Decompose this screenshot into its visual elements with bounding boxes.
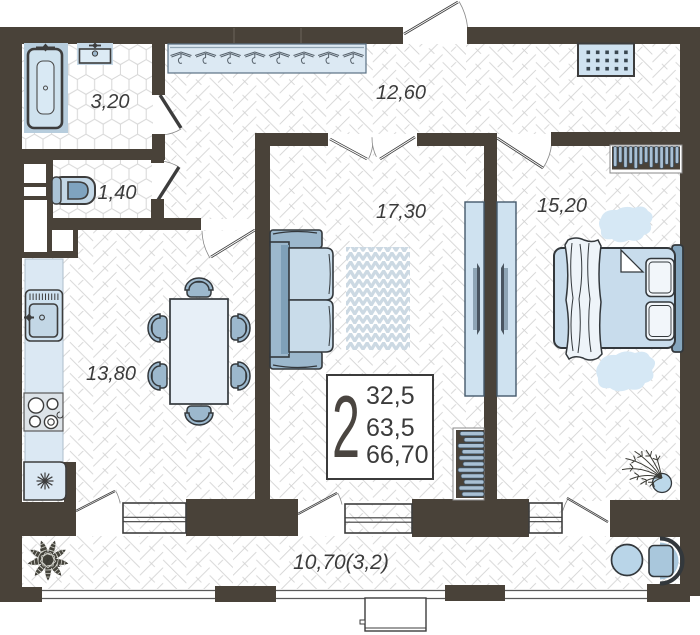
svg-text:2: 2 bbox=[332, 377, 360, 476]
svg-text:1,40: 1,40 bbox=[98, 182, 137, 204]
svg-text:32,5: 32,5 bbox=[366, 382, 415, 410]
svg-text:3,20: 3,20 bbox=[91, 91, 130, 113]
svg-text:15,20: 15,20 bbox=[537, 195, 587, 217]
svg-text:10,70(3,2): 10,70(3,2) bbox=[293, 551, 389, 574]
svg-text:63,5: 63,5 bbox=[366, 414, 415, 442]
svg-text:66,70: 66,70 bbox=[366, 441, 429, 469]
svg-text:13,80: 13,80 bbox=[86, 363, 136, 385]
svg-text:12,60: 12,60 bbox=[376, 82, 426, 104]
svg-text:17,30: 17,30 bbox=[376, 201, 426, 223]
